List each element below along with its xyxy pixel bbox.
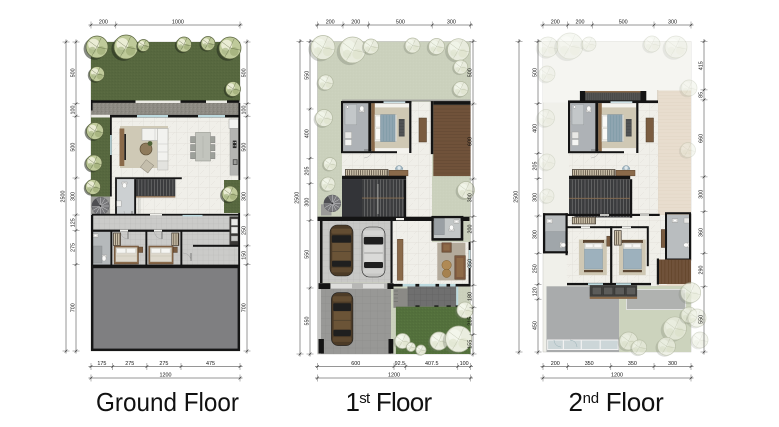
- svg-text:350: 350: [467, 259, 473, 268]
- svg-text:200: 200: [576, 19, 585, 25]
- svg-text:2500: 2500: [513, 191, 519, 203]
- svg-text:2500: 2500: [60, 191, 66, 203]
- svg-text:550: 550: [304, 250, 310, 259]
- svg-text:300: 300: [304, 198, 310, 207]
- svg-text:Ground Floor: Ground Floor: [96, 387, 239, 417]
- svg-text:500: 500: [532, 68, 538, 77]
- svg-text:300: 300: [467, 193, 473, 202]
- svg-text:500: 500: [619, 19, 628, 25]
- svg-text:1200: 1200: [611, 372, 623, 378]
- svg-text:360: 360: [698, 228, 704, 237]
- svg-text:550: 550: [698, 315, 704, 324]
- svg-text:250: 250: [241, 226, 247, 235]
- svg-text:250: 250: [532, 264, 538, 273]
- svg-text:500: 500: [467, 68, 473, 77]
- svg-text:200: 200: [551, 19, 560, 25]
- svg-text:600: 600: [467, 137, 473, 146]
- svg-text:660: 660: [698, 134, 704, 143]
- svg-text:205: 205: [304, 167, 310, 176]
- svg-text:200: 200: [99, 19, 108, 25]
- svg-text:300: 300: [241, 192, 247, 201]
- svg-text:475: 475: [206, 361, 215, 367]
- svg-text:300: 300: [668, 19, 677, 25]
- svg-text:550: 550: [304, 317, 310, 326]
- svg-text:700: 700: [241, 303, 247, 312]
- svg-text:2500: 2500: [294, 192, 300, 204]
- svg-text:205: 205: [532, 162, 538, 171]
- svg-text:125: 125: [70, 218, 76, 227]
- svg-text:200: 200: [467, 225, 473, 234]
- svg-text:180: 180: [467, 292, 473, 301]
- svg-text:100: 100: [460, 361, 469, 367]
- svg-text:1200: 1200: [160, 372, 172, 378]
- svg-text:300: 300: [447, 19, 456, 25]
- svg-text:450: 450: [532, 321, 538, 330]
- svg-text:1st Floor: 1st Floor: [346, 387, 433, 417]
- svg-text:275: 275: [125, 361, 134, 367]
- svg-text:100: 100: [241, 106, 247, 115]
- svg-text:200: 200: [351, 19, 360, 25]
- svg-text:290: 290: [698, 266, 704, 275]
- svg-text:300: 300: [532, 230, 538, 239]
- svg-text:275: 275: [159, 361, 168, 367]
- svg-text:92.5: 92.5: [395, 361, 406, 367]
- svg-text:175: 175: [97, 361, 106, 367]
- svg-text:300: 300: [698, 190, 704, 199]
- svg-text:100: 100: [70, 106, 76, 115]
- svg-text:155: 155: [467, 340, 473, 349]
- svg-text:500: 500: [396, 19, 405, 25]
- svg-text:275: 275: [70, 243, 76, 252]
- svg-text:550: 550: [304, 71, 310, 80]
- svg-text:415: 415: [698, 61, 704, 70]
- svg-text:350: 350: [585, 361, 594, 367]
- svg-text:500: 500: [241, 68, 247, 77]
- svg-text:150: 150: [241, 251, 247, 260]
- svg-text:300: 300: [70, 192, 76, 201]
- svg-text:200: 200: [551, 361, 560, 367]
- svg-text:500: 500: [241, 143, 247, 152]
- svg-text:400: 400: [304, 129, 310, 138]
- svg-text:120: 120: [532, 287, 538, 296]
- svg-text:1200: 1200: [388, 372, 400, 378]
- svg-text:407.5: 407.5: [425, 361, 439, 367]
- svg-text:1000: 1000: [172, 19, 184, 25]
- svg-text:500: 500: [70, 68, 76, 77]
- svg-text:600: 600: [351, 361, 360, 367]
- svg-text:85: 85: [698, 92, 704, 98]
- svg-text:700: 700: [70, 303, 76, 312]
- svg-text:300: 300: [668, 361, 677, 367]
- svg-text:200: 200: [326, 19, 335, 25]
- svg-text:500: 500: [70, 143, 76, 152]
- svg-text:400: 400: [532, 124, 538, 133]
- svg-text:350: 350: [628, 361, 637, 367]
- svg-text:215: 215: [467, 317, 473, 326]
- svg-text:300: 300: [532, 193, 538, 202]
